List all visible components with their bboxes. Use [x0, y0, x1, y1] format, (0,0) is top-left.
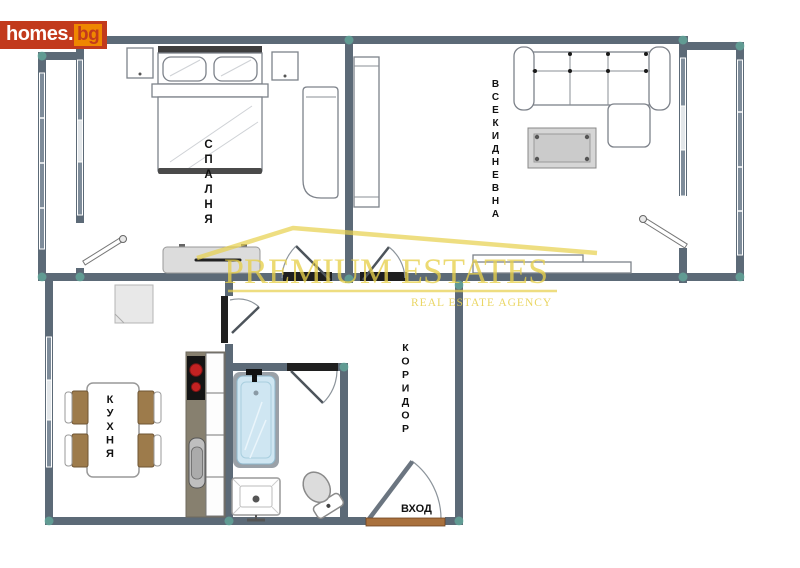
fridge-cabinet — [115, 285, 153, 323]
doors — [76, 196, 687, 526]
bathroom-sink — [232, 478, 280, 520]
watermark-title: PREMIUM ESTATES — [224, 250, 548, 292]
chaise — [303, 87, 338, 198]
logo-main-text: homes. — [6, 23, 73, 46]
kitchen-counter — [186, 352, 225, 517]
floor-plan: PREMIUM ESTATES REAL ESTATE AGENCY СПАЛН… — [0, 0, 800, 568]
entrance-door — [366, 460, 445, 526]
kitchen-sink — [189, 438, 205, 488]
chair — [138, 434, 161, 467]
kitchen-label: КУХНЯ — [104, 394, 115, 462]
wardrobe — [354, 57, 379, 207]
living-balcony-door — [640, 196, 688, 248]
coffee-table — [528, 128, 596, 168]
entrance-label: ВХОД — [401, 503, 432, 515]
faucet-icon — [246, 369, 262, 375]
toilet — [296, 466, 345, 520]
bedroom-balcony-door — [76, 223, 127, 268]
bedroom-furniture — [127, 46, 338, 273]
entrance-threshold — [366, 518, 445, 526]
bedroom-label: СПАЛНЯ — [202, 139, 214, 229]
bathroom-fixtures — [232, 369, 345, 520]
kitchen-furniture — [65, 285, 225, 517]
logo-suffix-text: bg — [74, 24, 102, 46]
living-room-label: ВСЕКИДНЕВНА — [490, 79, 500, 222]
corridor-label: КОРИДОР — [400, 342, 411, 437]
homes-bg-logo: homes.bg — [0, 21, 107, 49]
kitchen-door — [221, 296, 259, 344]
bathroom-door — [287, 363, 338, 403]
chair — [138, 391, 161, 424]
chair — [65, 434, 88, 467]
bathtub — [233, 369, 279, 468]
chair — [65, 391, 88, 424]
cooktop — [187, 356, 205, 400]
watermark-subtitle: REAL ESTATE AGENCY — [411, 297, 552, 309]
